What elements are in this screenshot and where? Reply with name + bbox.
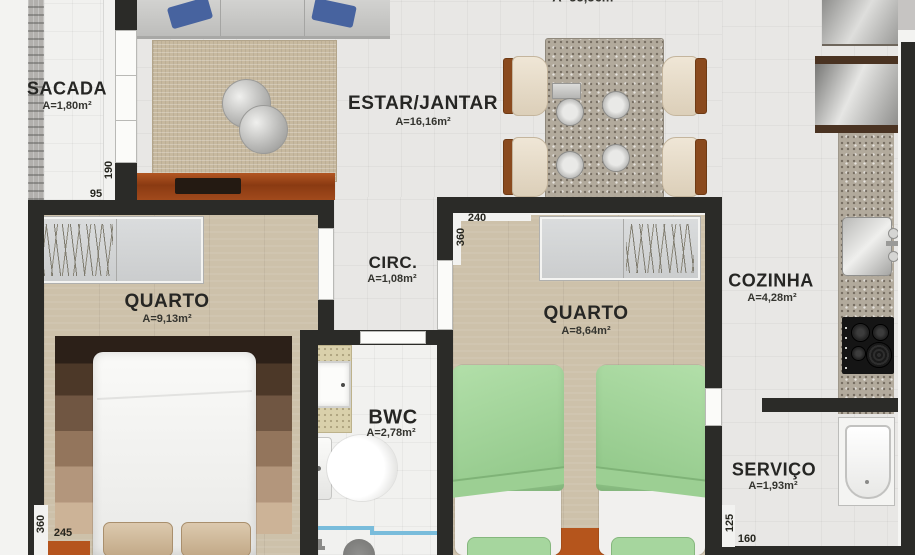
dining-chair [661,56,705,114]
dim-sacada-depth: 95 [90,188,102,200]
wall [453,197,722,213]
wall [898,42,915,555]
sofa-pillow [311,0,357,28]
plate [556,98,584,126]
bed-pillow [103,522,173,555]
plate [556,151,584,179]
dim-quarto1-width: 245 [54,527,72,539]
room-label-estar-jantar: ESTAR/JANTAR [348,93,498,115]
chair-seat [662,137,698,197]
door-post [115,163,137,200]
bed-pillow-green [467,537,551,555]
chair-seat [512,56,548,116]
room-area-sacada: A=1,80m² [42,100,91,112]
wardrobe-divider [623,219,624,278]
wall [28,200,334,215]
room-label-servico: SERVIÇO [732,460,816,481]
tv [175,178,241,194]
bed-pillow [181,522,251,555]
chair-seat [512,137,548,197]
service-door [705,388,722,426]
wall [437,197,453,555]
room-area-cozinha: A=4,28m² [747,292,796,304]
floor-plan: A=55,56m² SACADA A=1,80m² ESTAR/JANTAR A… [0,0,915,555]
burner [866,342,892,368]
plate [602,144,630,172]
total-area-label: A=55,56m² [552,0,617,5]
tank-basin [845,425,891,499]
wall [705,197,722,555]
room-area-quarto2: A=8,64m² [561,325,610,337]
dim-sacada-door: 190 [103,161,115,179]
tank-drain [865,480,869,484]
hangers [626,224,694,273]
wardrobe [35,217,203,283]
dining-chair [661,137,705,195]
shower-glass [318,526,374,530]
tray [552,83,581,99]
burner [851,346,866,361]
wall [28,200,44,555]
room-label-quarto2: QUARTO [544,303,629,325]
bedroom1-runner-rug [44,541,90,555]
room-label-sacada: SACADA [27,79,107,100]
room-area-servico: A=1,93m² [748,480,797,492]
bedroom2-door [437,260,453,330]
cooktop-knobs [845,325,847,369]
kitchen-sink [842,217,892,276]
tv-rack [137,173,335,200]
bedroom2-rug [556,528,604,555]
plate [602,91,630,119]
chair-back [695,58,707,114]
door-post [115,0,137,30]
wall-cut [898,0,915,30]
chair-back [695,139,707,195]
shower-glass [370,531,437,535]
dim-quarto2-width: 240 [468,212,486,224]
bedroom1-door [318,228,334,300]
wall [300,345,318,555]
kitchen-top-counter [822,0,898,46]
sofa-seam [220,0,221,36]
duvet-fold [97,390,252,400]
dim-quarto1-depth: 360 [35,515,47,533]
burner [851,323,870,342]
measure-band [453,213,531,221]
dim-quarto2-depth: 360 [455,228,467,246]
dining-chair [503,137,547,195]
fridge [815,56,898,133]
bed-pillow-green [611,537,695,555]
single-bed [455,365,561,555]
chair-seat [662,56,698,116]
room-area-bwc: A=2,78m² [366,427,415,439]
toilet-bowl [327,435,397,501]
sofa-pillow [167,0,213,29]
single-bed [599,365,705,555]
burner [872,324,889,341]
room-area-estar-jantar: A=16,16m² [395,116,450,128]
sofa [137,0,390,39]
hangers [41,224,113,276]
room-area-circ: A=1,08m² [367,273,416,285]
double-bed [93,352,256,555]
sink-drain [341,383,345,387]
wardrobe [540,217,700,280]
dining-table [545,38,664,199]
room-area-quarto1: A=9,13m² [142,313,191,325]
wall [722,546,915,555]
dim-servico-depth: 125 [724,514,736,532]
side-table [239,105,288,154]
dining-chair [503,56,547,114]
wall [762,398,898,412]
cooktop [842,317,894,374]
room-label-circ: CIRC. [369,253,418,273]
wardrobe-divider [116,219,117,281]
sliding-door [115,30,137,163]
room-label-cozinha: COZINHA [728,271,814,292]
room-label-quarto1: QUARTO [125,291,210,313]
bathroom-sink [314,361,351,408]
dim-servico-width: 160 [738,533,756,545]
sofa-seam [304,0,305,36]
laundry-tank [838,417,895,506]
bwc-door [360,331,426,344]
